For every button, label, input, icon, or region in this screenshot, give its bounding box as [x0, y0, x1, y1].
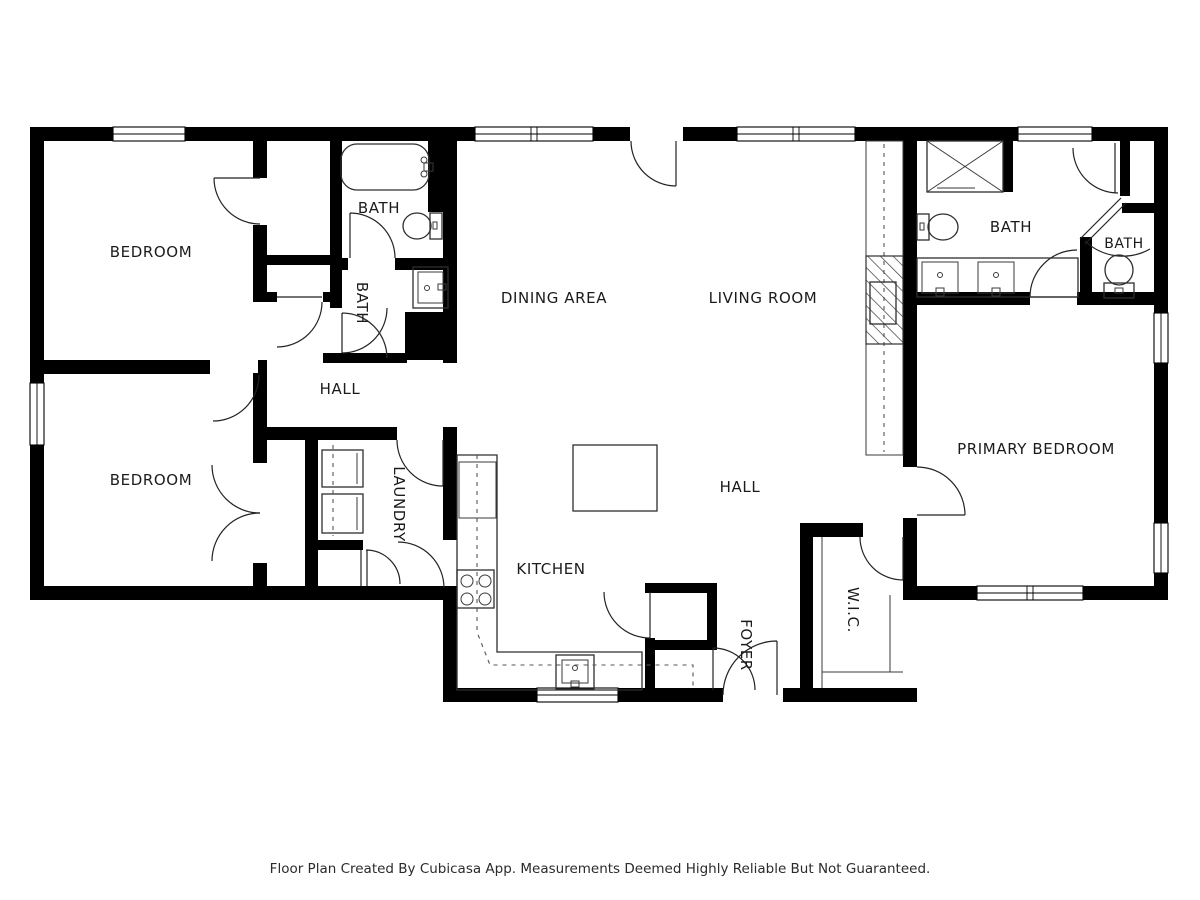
- window: [1154, 523, 1168, 573]
- closet-shelves: [822, 537, 903, 688]
- door-arc: [604, 592, 650, 638]
- window: [113, 127, 185, 141]
- kitchen-sink: [556, 655, 594, 689]
- shower: [927, 141, 1003, 192]
- stove: [457, 570, 494, 608]
- room-label-kitchen: KITCHEN: [516, 560, 585, 578]
- room-label-hall-center: HALL: [720, 478, 761, 496]
- room-label-bath-2: BATH: [353, 282, 371, 324]
- room-label-bedroom-2: BEDROOM: [110, 471, 193, 489]
- room-label-living-room: LIVING ROOM: [709, 289, 818, 307]
- window: [475, 127, 593, 141]
- room-label-laundry: LAUNDRY: [390, 466, 408, 542]
- toilet: [403, 213, 442, 239]
- door-arc: [631, 141, 676, 186]
- door-arc: [1073, 143, 1118, 193]
- double-vanity: [917, 258, 1078, 297]
- room-label-bath-1: BATH: [358, 199, 400, 217]
- room-label-foyer: FOYER: [737, 619, 755, 671]
- floor-plan-canvas: BEDROOM BATH BATH DINING AREA LIVING ROO…: [0, 0, 1200, 900]
- door-arc: [1030, 250, 1077, 297]
- door-arc: [350, 213, 395, 258]
- door-arc: [361, 542, 444, 588]
- room-label-primary-bedroom: PRIMARY BEDROOM: [957, 440, 1115, 458]
- window: [737, 127, 855, 141]
- sink: [413, 267, 448, 308]
- window: [977, 586, 1083, 600]
- door-arc: [366, 550, 400, 584]
- room-label-hall-west: HALL: [320, 380, 361, 398]
- caption: Floor Plan Created By Cubicasa App. Meas…: [270, 861, 931, 877]
- door-arc: [214, 178, 260, 224]
- kitchen-island: [573, 445, 657, 511]
- door-arc: [212, 465, 260, 513]
- room-label-bath-3: BATH: [990, 218, 1032, 236]
- window: [1154, 313, 1168, 363]
- room-label-wic: W.I.C.: [844, 587, 862, 633]
- door-arc: [213, 375, 259, 421]
- door-arc: [917, 467, 965, 515]
- room-label-bedroom-1: BEDROOM: [110, 243, 193, 261]
- room-label-dining-area: DINING AREA: [501, 289, 607, 307]
- toilet: [917, 214, 958, 240]
- fireplace: [866, 141, 903, 455]
- door-arc: [277, 297, 322, 347]
- bathtub: [341, 144, 429, 190]
- windows: [30, 127, 1168, 702]
- window: [30, 383, 44, 445]
- door-arc: [212, 513, 260, 561]
- door-arc: [860, 537, 903, 580]
- window: [1018, 127, 1092, 141]
- exterior-walls: [30, 127, 1168, 702]
- room-label-bath-4: BATH: [1104, 236, 1144, 252]
- toilet: [1104, 255, 1134, 298]
- interior-walls: [44, 127, 1157, 702]
